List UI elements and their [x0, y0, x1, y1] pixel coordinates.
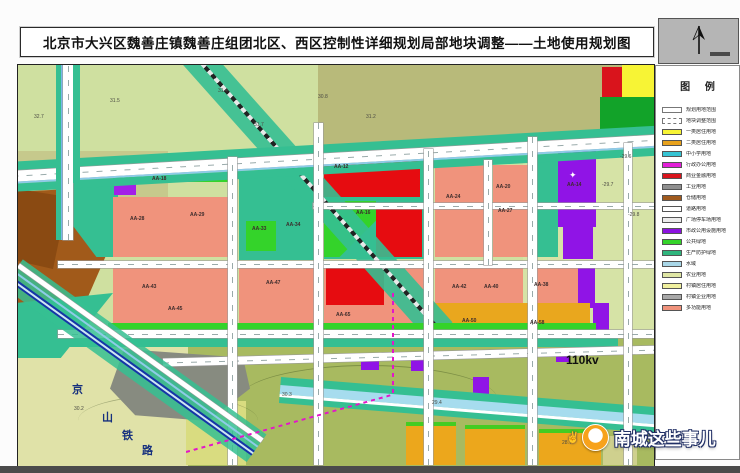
elevation-label: 30.2: [74, 407, 84, 412]
legend-swatch: [662, 250, 682, 256]
road-v4: [424, 149, 433, 465]
legend-label: 地块调整范围: [686, 118, 716, 124]
watermark-logo-icon: [582, 424, 609, 451]
parcel-label: AA-14: [567, 183, 581, 188]
parcel-label: AA-20: [496, 185, 510, 190]
elevation-label: 30.3: [282, 393, 292, 398]
legend-item: 二类居住用地: [662, 137, 737, 148]
legend-item: 工业用地: [662, 181, 737, 192]
parcel-label: AA-16: [356, 211, 370, 216]
road-h2: [58, 261, 655, 268]
bottom-bar: [0, 466, 740, 473]
parcel-utility-purple: [361, 361, 379, 370]
legend-label: 水域: [686, 261, 696, 267]
legend-item: 中小学用地: [662, 148, 737, 159]
legend-title: 图 例: [656, 78, 739, 93]
watermark: ✌ 南城这些事儿: [566, 424, 716, 451]
legend-label: 农业用地: [686, 272, 706, 278]
legend-swatch: [662, 305, 682, 311]
parcel-utility-purple: [563, 225, 593, 259]
parcel-multiuse-salmon: [435, 165, 485, 257]
legend-panel: 图 例 规划用地范围地块调整范围一类居住用地二类居住用地中小学用地行政办公用地商…: [655, 65, 740, 460]
parcel-label: AA-29: [190, 213, 204, 218]
legend-swatch: [662, 294, 682, 300]
parcel-label: AA-50: [462, 319, 476, 324]
elevation-label: 31.4: [218, 89, 228, 94]
legend-label: 中小学用地: [686, 151, 711, 157]
legend-item: 农业用地: [662, 269, 737, 280]
legend-swatch: [662, 184, 682, 190]
greenstrip: [108, 323, 596, 330]
parcel-label: AA-40: [484, 285, 498, 290]
parcel-label: AA-33: [252, 227, 266, 232]
elevation-label: 31.5: [110, 99, 120, 104]
parcel-label: AA-34: [286, 223, 300, 228]
legend-label: 仓储用地: [686, 195, 706, 201]
legend-swatch: [662, 118, 682, 124]
legend-item: 地块调整范围: [662, 115, 737, 126]
parcel-label: AA-38: [534, 283, 548, 288]
legend-swatch: [662, 162, 682, 168]
parcel-commercial-red: [602, 67, 622, 97]
road-v6: [624, 143, 632, 465]
elevation-label: -29.8: [628, 213, 639, 218]
legend-item: 村镇企业用地: [662, 291, 737, 302]
legend-swatch: [662, 173, 682, 179]
elevation-label: 29.4: [432, 401, 442, 406]
legend-item: 广场停车场用地: [662, 214, 737, 225]
legend-swatch: [662, 272, 682, 278]
parcel-label: AA-12: [334, 165, 348, 170]
legend-item: 行政办公用地: [662, 159, 737, 170]
legend-label: 广场停车场用地: [686, 217, 721, 223]
legend-swatch: [662, 151, 682, 157]
road-v1: [63, 65, 73, 240]
map-canvas: ✦: [17, 64, 655, 467]
elevation-label: 32.7: [34, 115, 44, 120]
parcel-label: AA-43: [142, 285, 156, 290]
legend-item: 公共绿地: [662, 236, 737, 247]
parcel-multiuse-salmon: [113, 268, 231, 323]
road-h3: [58, 330, 655, 338]
parcel-label: AA-42: [452, 285, 466, 290]
legend-item: 商业金融用地: [662, 170, 737, 181]
road-v4b: [484, 160, 492, 265]
legend-swatch: [662, 206, 682, 212]
parcel-utility-purple: [578, 268, 595, 308]
parcel-label: AA-18: [152, 177, 166, 182]
legend-label: 工业用地: [686, 184, 706, 190]
legend-item: 市政公用设施用地: [662, 225, 737, 236]
planning-map-page: 北京市大兴区魏善庄镇魏善庄组团北区、西区控制性详细规划局部地块调整——土地使用规…: [0, 0, 740, 473]
railway-name-char: 路: [142, 442, 153, 458]
legend-item: 生产防护绿地: [662, 247, 737, 258]
map-title-bar: 北京市大兴区魏善庄镇魏善庄组团北区、西区控制性详细规划局部地块调整——土地使用规…: [20, 27, 654, 57]
legend-items: 规划用地范围地块调整范围一类居住用地二类居住用地中小学用地行政办公用地商业金融用…: [662, 104, 737, 313]
watermark-text: 南城这些事儿: [614, 425, 716, 450]
legend-item: 道路用地: [662, 203, 737, 214]
parcel-label: AA-58: [530, 321, 544, 326]
parcel-label: AA-28: [130, 217, 144, 222]
elevation-label: -29.7: [602, 183, 613, 188]
legend-label: 道路用地: [686, 206, 706, 212]
legend-label: 生产防护绿地: [686, 250, 716, 256]
watermark-hand-icon: ✌: [566, 431, 580, 444]
parcel-residential-yellow: [622, 65, 654, 101]
parcel-label: AA-24: [446, 195, 460, 200]
scale-bar: [710, 52, 730, 56]
legend-label: 二类居住用地: [686, 140, 716, 146]
legend-item: 一类居住用地: [662, 126, 737, 137]
parcel-multiuse-salmon: [239, 268, 316, 323]
legend-swatch: [662, 239, 682, 245]
legend-label: 村镇居住用地: [686, 283, 716, 289]
elevation-label: 30.8: [318, 95, 328, 100]
elevation-label: -29.6: [620, 155, 631, 160]
north-arrow-icon: [689, 24, 709, 56]
legend-swatch: [662, 228, 682, 234]
greenbelt-road: [73, 65, 80, 183]
legend-label: 规划用地范围: [686, 107, 716, 113]
power-line-label: 110kv: [566, 353, 599, 367]
legend-swatch: [662, 283, 682, 289]
parcel-multiuse-salmon: [113, 197, 231, 257]
legend-label: 市政公用设施用地: [686, 228, 726, 234]
compass-box: [658, 18, 739, 64]
parcel-label: AA-47: [266, 281, 280, 286]
legend-item: 仓储用地: [662, 192, 737, 203]
elevation-label: 31.7: [254, 123, 264, 128]
map-title: 北京市大兴区魏善庄镇魏善庄组团北区、西区控制性详细规划局部地块调整——土地使用规…: [43, 32, 631, 52]
legend-swatch: [662, 129, 682, 135]
utility-star-marker: ✦: [569, 170, 577, 181]
legend-item: 村镇居住用地: [662, 280, 737, 291]
legend-swatch: [662, 261, 682, 267]
legend-swatch: [662, 217, 682, 223]
road-v5: [528, 137, 537, 465]
legend-swatch: [662, 195, 682, 201]
parcel-residential2-orange: [465, 429, 525, 465]
legend-swatch: [662, 107, 682, 113]
legend-item: 多功能用地: [662, 302, 737, 313]
legend-label: 商业金融用地: [686, 173, 716, 179]
boundary-line-magenta: [392, 291, 394, 393]
legend-swatch: [662, 140, 682, 146]
legend-label: 村镇企业用地: [686, 294, 716, 300]
parcel-label: AA-65: [336, 313, 350, 318]
railway-name-char: 山: [102, 409, 113, 425]
railway-name-char: 铁: [122, 427, 133, 443]
railway-name-char: 京: [72, 381, 83, 397]
parcel-label: AA-45: [168, 307, 182, 312]
parcel-multiuse-salmon: [435, 268, 523, 308]
legend-item: 水域: [662, 258, 737, 269]
legend-label: 行政办公用地: [686, 162, 716, 168]
elevation-label: 31.2: [366, 115, 376, 120]
parcel-label: AA-27: [498, 209, 512, 214]
legend-item: 规划用地范围: [662, 104, 737, 115]
legend-label: 公共绿地: [686, 239, 706, 245]
legend-label: 一类居住用地: [686, 129, 716, 135]
legend-label: 多功能用地: [686, 305, 711, 311]
